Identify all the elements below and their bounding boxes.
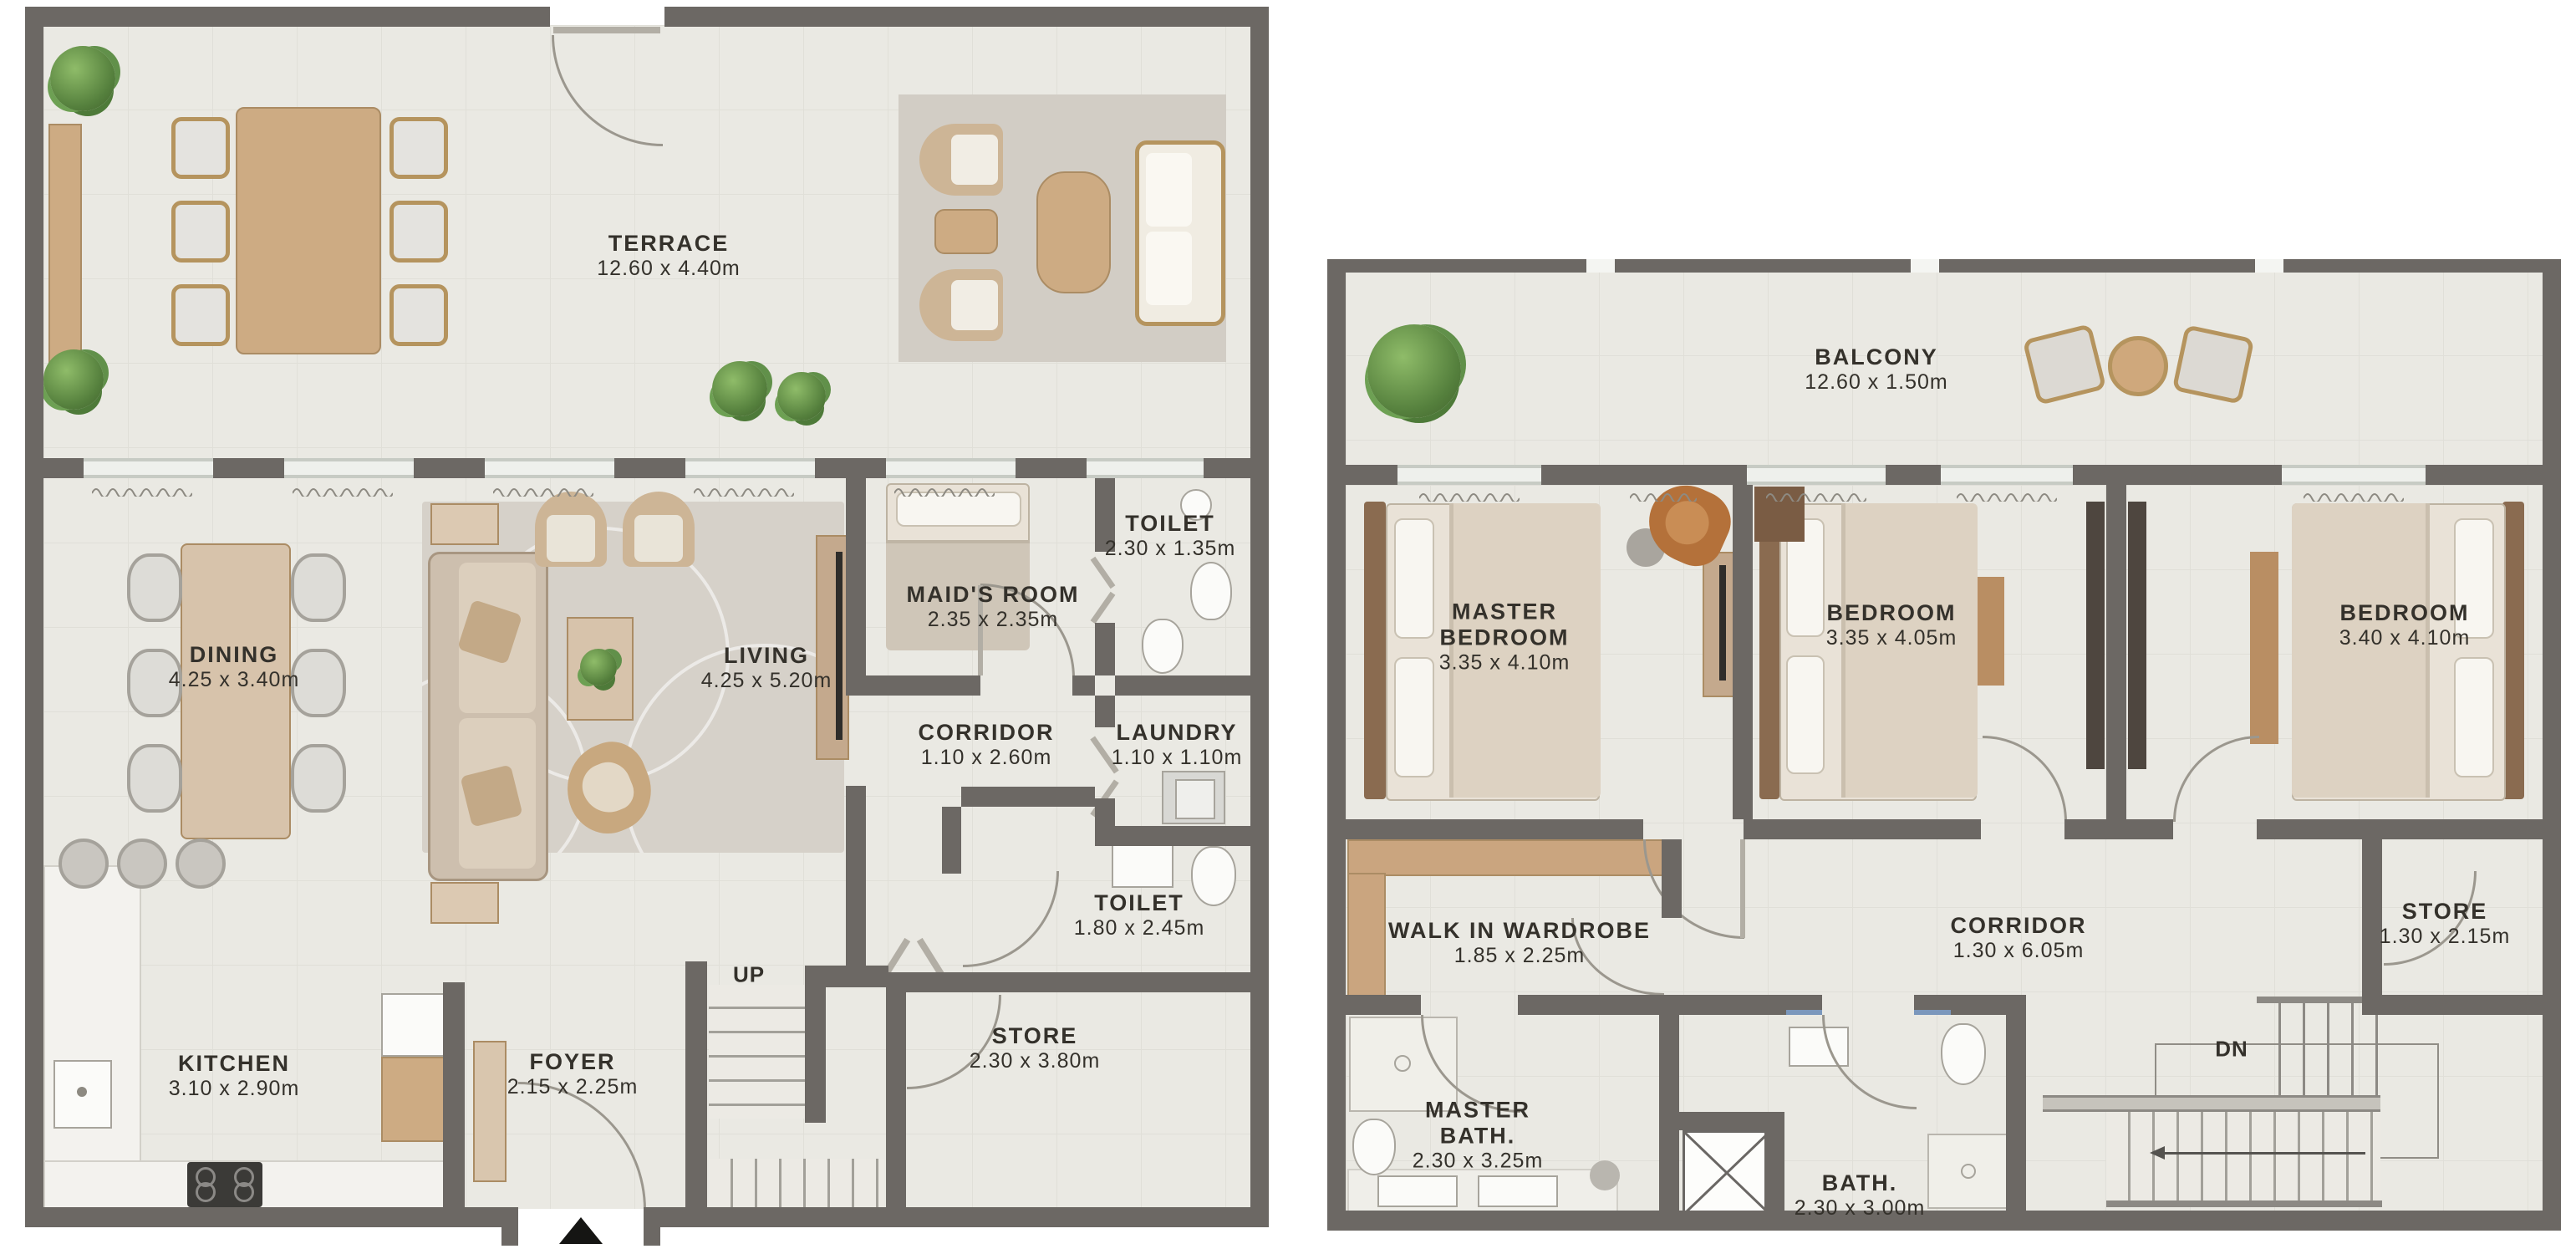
- chair: [291, 553, 346, 622]
- wardrobe-door: [2086, 502, 2105, 769]
- bar-stool: [176, 839, 226, 889]
- wall: [1327, 259, 1346, 1231]
- wall: [1659, 995, 1679, 1211]
- stairs-up: [709, 985, 805, 1119]
- seat-cushion: [951, 135, 998, 185]
- curtain-squiggle-icon: [493, 483, 593, 501]
- plant-icon: [43, 349, 104, 410]
- wall: [685, 961, 707, 1207]
- outdoor-dining-table: [236, 107, 381, 354]
- curtain-squiggle-icon: [293, 483, 393, 501]
- pillow: [2454, 657, 2494, 777]
- balcony-chair: [2172, 324, 2255, 405]
- kitchen-sink-icon: [53, 1060, 112, 1129]
- wall: [2106, 485, 2126, 819]
- side-table: [430, 503, 499, 545]
- wall: [805, 987, 826, 1123]
- stair-label-up: UP: [733, 962, 765, 988]
- curtain-squiggle-icon: [2304, 488, 2404, 506]
- armchair: [919, 269, 1003, 341]
- bench: [2250, 552, 2278, 744]
- shower-drain: [1394, 1055, 1411, 1072]
- chair: [389, 284, 448, 346]
- wall: [1095, 623, 1115, 675]
- wall: [1327, 1211, 2561, 1231]
- plant-icon: [1367, 324, 1461, 418]
- room-label-walk-in-wardrobe: WALK IN WARDROBE1.85 x 2.25m: [1388, 918, 1651, 968]
- room-label-bedroom-3: BEDROOM3.40 x 4.10m: [2339, 600, 2471, 650]
- room-label-living: LIVING4.25 x 5.20m: [701, 643, 832, 693]
- fridge: [381, 993, 446, 1057]
- plant-icon: [712, 361, 767, 416]
- room-label-corridor: CORRIDOR1.10 x 2.60m: [919, 720, 1055, 770]
- wall: [1733, 485, 1753, 819]
- armchair: [623, 492, 695, 567]
- room-label-bedroom-2: BEDROOM3.35 x 4.05m: [1826, 600, 1957, 650]
- wall: [805, 966, 888, 987]
- chair: [389, 201, 448, 263]
- stove-icon: [187, 1162, 262, 1207]
- wall: [25, 7, 43, 1227]
- room-label-toilet-top: TOILET2.30 x 1.35m: [1105, 511, 1236, 561]
- wall: [664, 7, 1269, 27]
- wall: [886, 972, 1250, 992]
- wall: [1115, 675, 1250, 696]
- wall: [2064, 819, 2173, 839]
- curtain-squiggle-icon: [1419, 488, 1520, 506]
- stairs-balusters: [2257, 1003, 2389, 1095]
- bar-stool: [117, 839, 167, 889]
- railing: [2106, 1200, 2382, 1207]
- room-label-balcony: BALCONY12.60 x 1.50m: [1805, 344, 1947, 395]
- curtain-squiggle-icon: [1630, 488, 1697, 506]
- burner: [234, 1182, 254, 1202]
- room-label-store-upper: STORE1.30 x 2.15m: [2380, 899, 2511, 949]
- entrance-arrow-icon: [559, 1217, 603, 1244]
- window: [284, 458, 414, 478]
- room-label-store: STORE2.30 x 3.80m: [970, 1023, 1101, 1073]
- window: [1911, 259, 1939, 273]
- room-label-toilet-lower: TOILET1.80 x 2.45m: [1074, 890, 1205, 940]
- toilet-icon: [1142, 619, 1184, 674]
- chair: [171, 201, 230, 263]
- glass-partition: [1914, 1010, 1951, 1015]
- armchair: [535, 492, 607, 567]
- burner: [196, 1182, 216, 1202]
- bed: [1759, 502, 1973, 799]
- curtain-squiggle-icon: [894, 483, 995, 501]
- room-label-foyer: FOYER2.15 x 2.25m: [507, 1049, 639, 1099]
- wall: [1095, 798, 1115, 846]
- wall: [660, 1207, 1269, 1227]
- outdoor-sofa: [1135, 140, 1225, 326]
- side-table: [934, 209, 998, 254]
- curtain-squiggle-icon: [1957, 488, 2057, 506]
- seat-cushion: [547, 515, 595, 562]
- wall: [2543, 259, 2561, 1231]
- wall: [1250, 7, 1269, 1227]
- seat-cushion: [951, 280, 998, 330]
- window: [2255, 259, 2283, 273]
- bar-stool: [59, 839, 109, 889]
- blanket: [2292, 503, 2430, 798]
- wall: [1072, 675, 1095, 696]
- sink-icon: [1478, 1175, 1558, 1207]
- chair: [291, 744, 346, 813]
- chair: [127, 744, 182, 813]
- wall: [1346, 819, 1643, 839]
- foyer-closet: [473, 1041, 507, 1182]
- window: [1747, 465, 1886, 485]
- window: [1586, 259, 1615, 273]
- wall: [886, 992, 906, 1207]
- wall: [846, 786, 866, 972]
- pillow: [1394, 657, 1434, 777]
- wall: [25, 1207, 501, 1227]
- wall: [2257, 819, 2543, 839]
- railing: [2043, 1095, 2380, 1112]
- tall-cabinet: [381, 1057, 446, 1142]
- curtain-squiggle-icon: [92, 483, 192, 501]
- room-label-dining: DINING4.25 x 3.40m: [169, 642, 300, 692]
- console-table: [48, 124, 82, 378]
- wall: [1327, 259, 2561, 273]
- faucet: [77, 1087, 87, 1097]
- curtain-squiggle-icon: [694, 483, 794, 501]
- washer-icon: [1162, 771, 1225, 824]
- wall: [1662, 839, 1682, 918]
- wardrobe-door: [2128, 502, 2146, 769]
- washer-drum: [1175, 779, 1215, 819]
- pillow: [1786, 655, 1825, 774]
- bed: [2292, 502, 2524, 799]
- chair: [127, 553, 182, 622]
- wall: [644, 1207, 660, 1246]
- toilet-icon: [1941, 1023, 1986, 1085]
- plant-icon: [777, 372, 826, 421]
- room-label-bath: BATH.2.30 x 3.00m: [1795, 1170, 1926, 1221]
- seat-cushion: [576, 756, 639, 820]
- window: [1941, 465, 2073, 485]
- armchair: [919, 124, 1003, 196]
- wall: [1744, 819, 1981, 839]
- window: [685, 458, 815, 478]
- seat-cushion: [1146, 232, 1192, 305]
- tv-icon: [1719, 565, 1726, 681]
- coffee-table: [1036, 171, 1111, 293]
- stairs-lower-flight: [709, 1159, 884, 1207]
- sink-icon: [1112, 843, 1173, 888]
- floorplan-canvas: TERRACE12.60 x 4.40m DINING4.25 x 3.40m …: [0, 0, 2576, 1254]
- blanket: [1841, 503, 1978, 798]
- wall: [1764, 1112, 1784, 1211]
- dresser: [1978, 577, 2004, 686]
- wall: [846, 675, 980, 696]
- room-label-maids-room: MAID'S ROOM2.35 x 2.35m: [907, 582, 1080, 632]
- seat-cushion: [634, 515, 683, 562]
- window: [2282, 465, 2426, 485]
- wall: [1115, 826, 1250, 846]
- seat-cushion: [1146, 153, 1192, 227]
- sink-icon: [1190, 562, 1232, 620]
- room-label-terrace: TERRACE12.60 x 4.40m: [597, 231, 740, 281]
- side-table: [430, 882, 499, 924]
- sink-icon: [1377, 1175, 1458, 1207]
- door-leaf: [553, 27, 660, 33]
- shower: [1927, 1134, 2008, 1209]
- wardrobe-shelf: [1347, 873, 1386, 998]
- glass-partition: [1786, 1010, 1822, 1015]
- stool: [1590, 1160, 1620, 1190]
- toilet-icon: [1352, 1119, 1396, 1175]
- wardrobe-shelf: [1347, 839, 1682, 876]
- wall: [942, 807, 961, 874]
- plant-icon: [580, 649, 617, 686]
- window: [485, 458, 614, 478]
- room-label-kitchen: KITCHEN3.10 x 2.90m: [169, 1051, 300, 1101]
- direction-arrow: [2165, 1152, 2365, 1155]
- room-label-laundry: LAUNDRY1.10 x 1.10m: [1112, 720, 1243, 770]
- wall: [501, 1207, 518, 1246]
- chair: [389, 117, 448, 179]
- wall: [2362, 995, 2543, 1015]
- stair-label-dn: DN: [2215, 1037, 2248, 1063]
- window: [84, 458, 213, 478]
- shower-drain: [1961, 1164, 1976, 1179]
- tv-icon: [836, 552, 843, 740]
- window: [886, 458, 1016, 478]
- plant-icon: [50, 46, 115, 111]
- room-label-master-bath: MASTER BATH.2.30 x 3.25m: [1398, 1098, 1557, 1174]
- window: [1397, 465, 1541, 485]
- direction-arrow-head: [2150, 1146, 2165, 1160]
- wall: [846, 478, 866, 696]
- balcony-table: [2108, 336, 2168, 396]
- door-leaf: [1740, 839, 1745, 938]
- room-label-corridor-upper: CORRIDOR1.30 x 6.05m: [1951, 913, 2087, 963]
- elevator-shaft: [1683, 1130, 1771, 1216]
- wall: [2006, 995, 2026, 1211]
- headboard: [1364, 502, 1386, 799]
- chair: [171, 284, 230, 346]
- curtain-squiggle-icon: [1766, 488, 1866, 506]
- room-label-master-bedroom: MASTER BEDROOM3.35 x 4.10m: [1404, 599, 1605, 675]
- wall: [443, 982, 465, 1207]
- window: [1087, 458, 1204, 478]
- chair: [171, 117, 230, 179]
- wall: [961, 787, 1095, 807]
- headboard: [1759, 502, 1779, 799]
- wall: [1518, 995, 1678, 1015]
- sofa: [428, 552, 548, 881]
- wall: [1346, 995, 1421, 1015]
- wall: [25, 7, 550, 27]
